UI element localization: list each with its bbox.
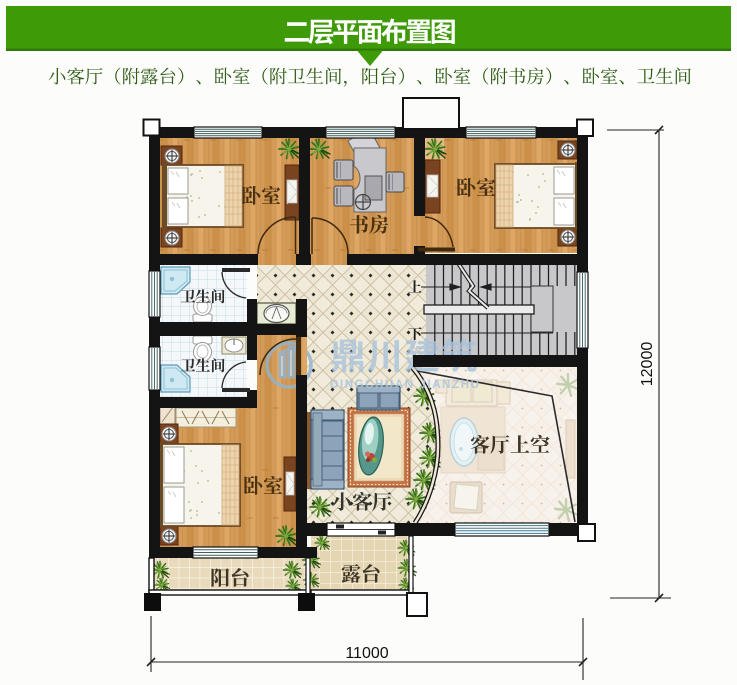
svg-text:12000: 12000 [639, 342, 656, 387]
svg-text:DINGCHUAN JIANZHU: DINGCHUAN JIANZHU [330, 379, 481, 391]
svg-text:11000: 11000 [345, 645, 388, 662]
